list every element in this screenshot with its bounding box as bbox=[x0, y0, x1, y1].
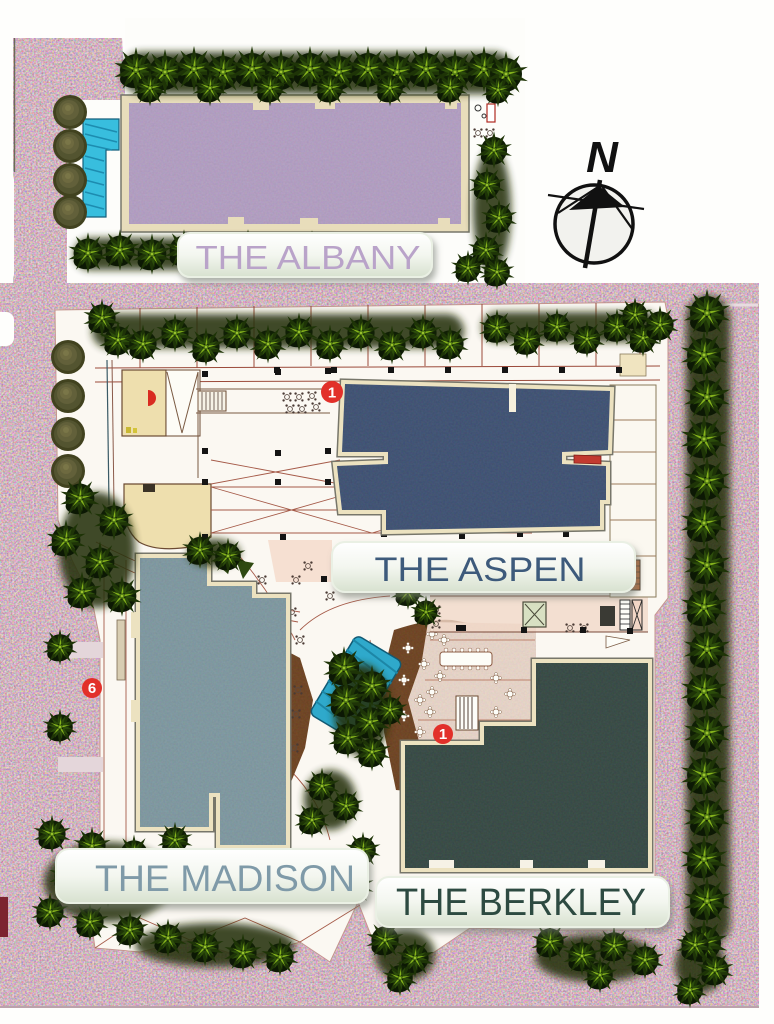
svg-text:6: 6 bbox=[88, 680, 96, 697]
svg-text:1: 1 bbox=[439, 726, 447, 743]
svg-text:N: N bbox=[586, 133, 619, 182]
svg-text:THE ASPEN: THE ASPEN bbox=[375, 551, 586, 589]
svg-text:THE ALBANY: THE ALBANY bbox=[196, 239, 421, 276]
svg-text:THE BERKLEY: THE BERKLEY bbox=[396, 882, 646, 924]
svg-text:1: 1 bbox=[328, 385, 336, 402]
svg-text:THE MADISON: THE MADISON bbox=[95, 858, 355, 899]
